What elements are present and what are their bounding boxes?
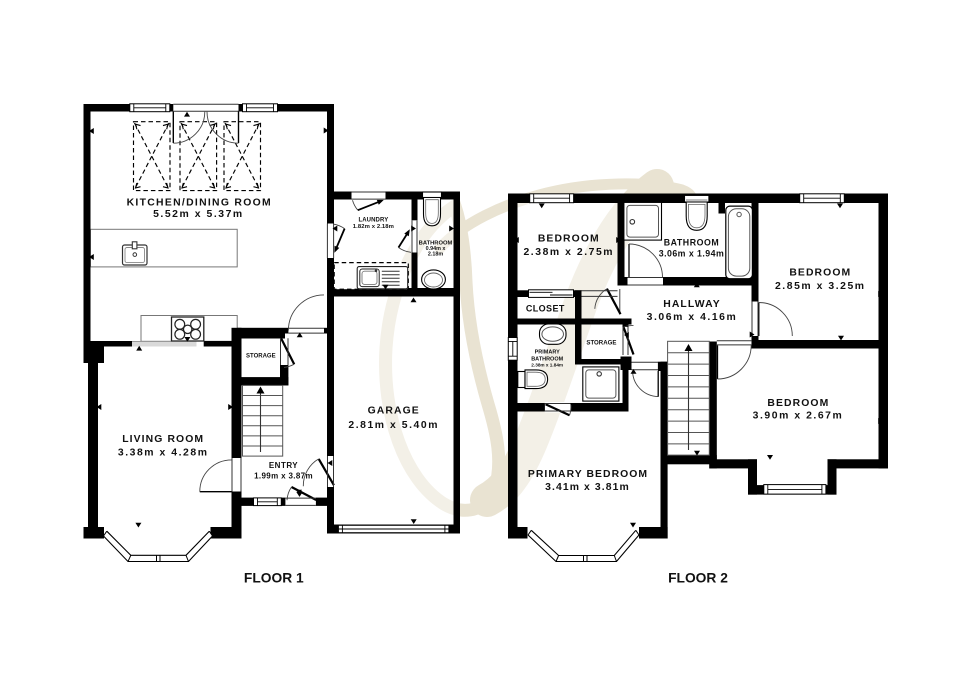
svg-text:3.06m x 4.16m: 3.06m x 4.16m <box>647 312 738 323</box>
svg-text:BEDROOM: BEDROOM <box>767 398 829 409</box>
svg-text:PRIMARY BEDROOM: PRIMARY BEDROOM <box>528 469 648 480</box>
svg-text:3.90m x 2.67m: 3.90m x 2.67m <box>753 410 844 421</box>
svg-text:5.52m x 5.37m: 5.52m x 5.37m <box>153 209 244 220</box>
svg-text:CLOSET: CLOSET <box>526 303 565 313</box>
svg-text:3.38m x 4.28m: 3.38m x 4.28m <box>118 448 209 459</box>
svg-text:PRIMARY: PRIMARY <box>535 349 560 355</box>
svg-text:STORAGE: STORAGE <box>586 340 616 347</box>
svg-text:BATHROOM: BATHROOM <box>664 238 720 248</box>
svg-text:3.41m x 3.81m: 3.41m x 3.81m <box>545 482 630 493</box>
svg-text:FLOOR 2: FLOOR 2 <box>668 571 728 586</box>
svg-text:3.06m x 1.94m: 3.06m x 1.94m <box>659 248 725 258</box>
svg-text:2.38m x 1.84m: 2.38m x 1.84m <box>531 363 563 368</box>
svg-text:GARAGE: GARAGE <box>368 406 420 417</box>
svg-text:STORAGE: STORAGE <box>246 354 276 360</box>
svg-text:KITCHEN/DINING ROOM: KITCHEN/DINING ROOM <box>127 198 272 209</box>
svg-text:1.99m x 3.87m: 1.99m x 3.87m <box>254 471 313 480</box>
svg-text:BEDROOM: BEDROOM <box>789 268 851 279</box>
svg-text:LIVING ROOM: LIVING ROOM <box>122 434 204 445</box>
svg-text:1.82m x 2.18m: 1.82m x 2.18m <box>353 224 394 230</box>
svg-text:BATHROOM: BATHROOM <box>531 356 563 362</box>
svg-text:2.85m x 3.25m: 2.85m x 3.25m <box>775 281 866 292</box>
svg-text:FLOOR 1: FLOOR 1 <box>244 571 304 586</box>
svg-text:ENTRY: ENTRY <box>269 461 298 470</box>
svg-text:2.38m x 2.75m: 2.38m x 2.75m <box>523 247 614 258</box>
svg-text:2.81m x 5.40m: 2.81m x 5.40m <box>348 420 439 431</box>
svg-text:BEDROOM: BEDROOM <box>538 234 600 245</box>
svg-text:2.18m: 2.18m <box>428 252 443 258</box>
svg-text:HALLWAY: HALLWAY <box>663 299 721 310</box>
svg-text:LAUNDRY: LAUNDRY <box>358 218 388 224</box>
